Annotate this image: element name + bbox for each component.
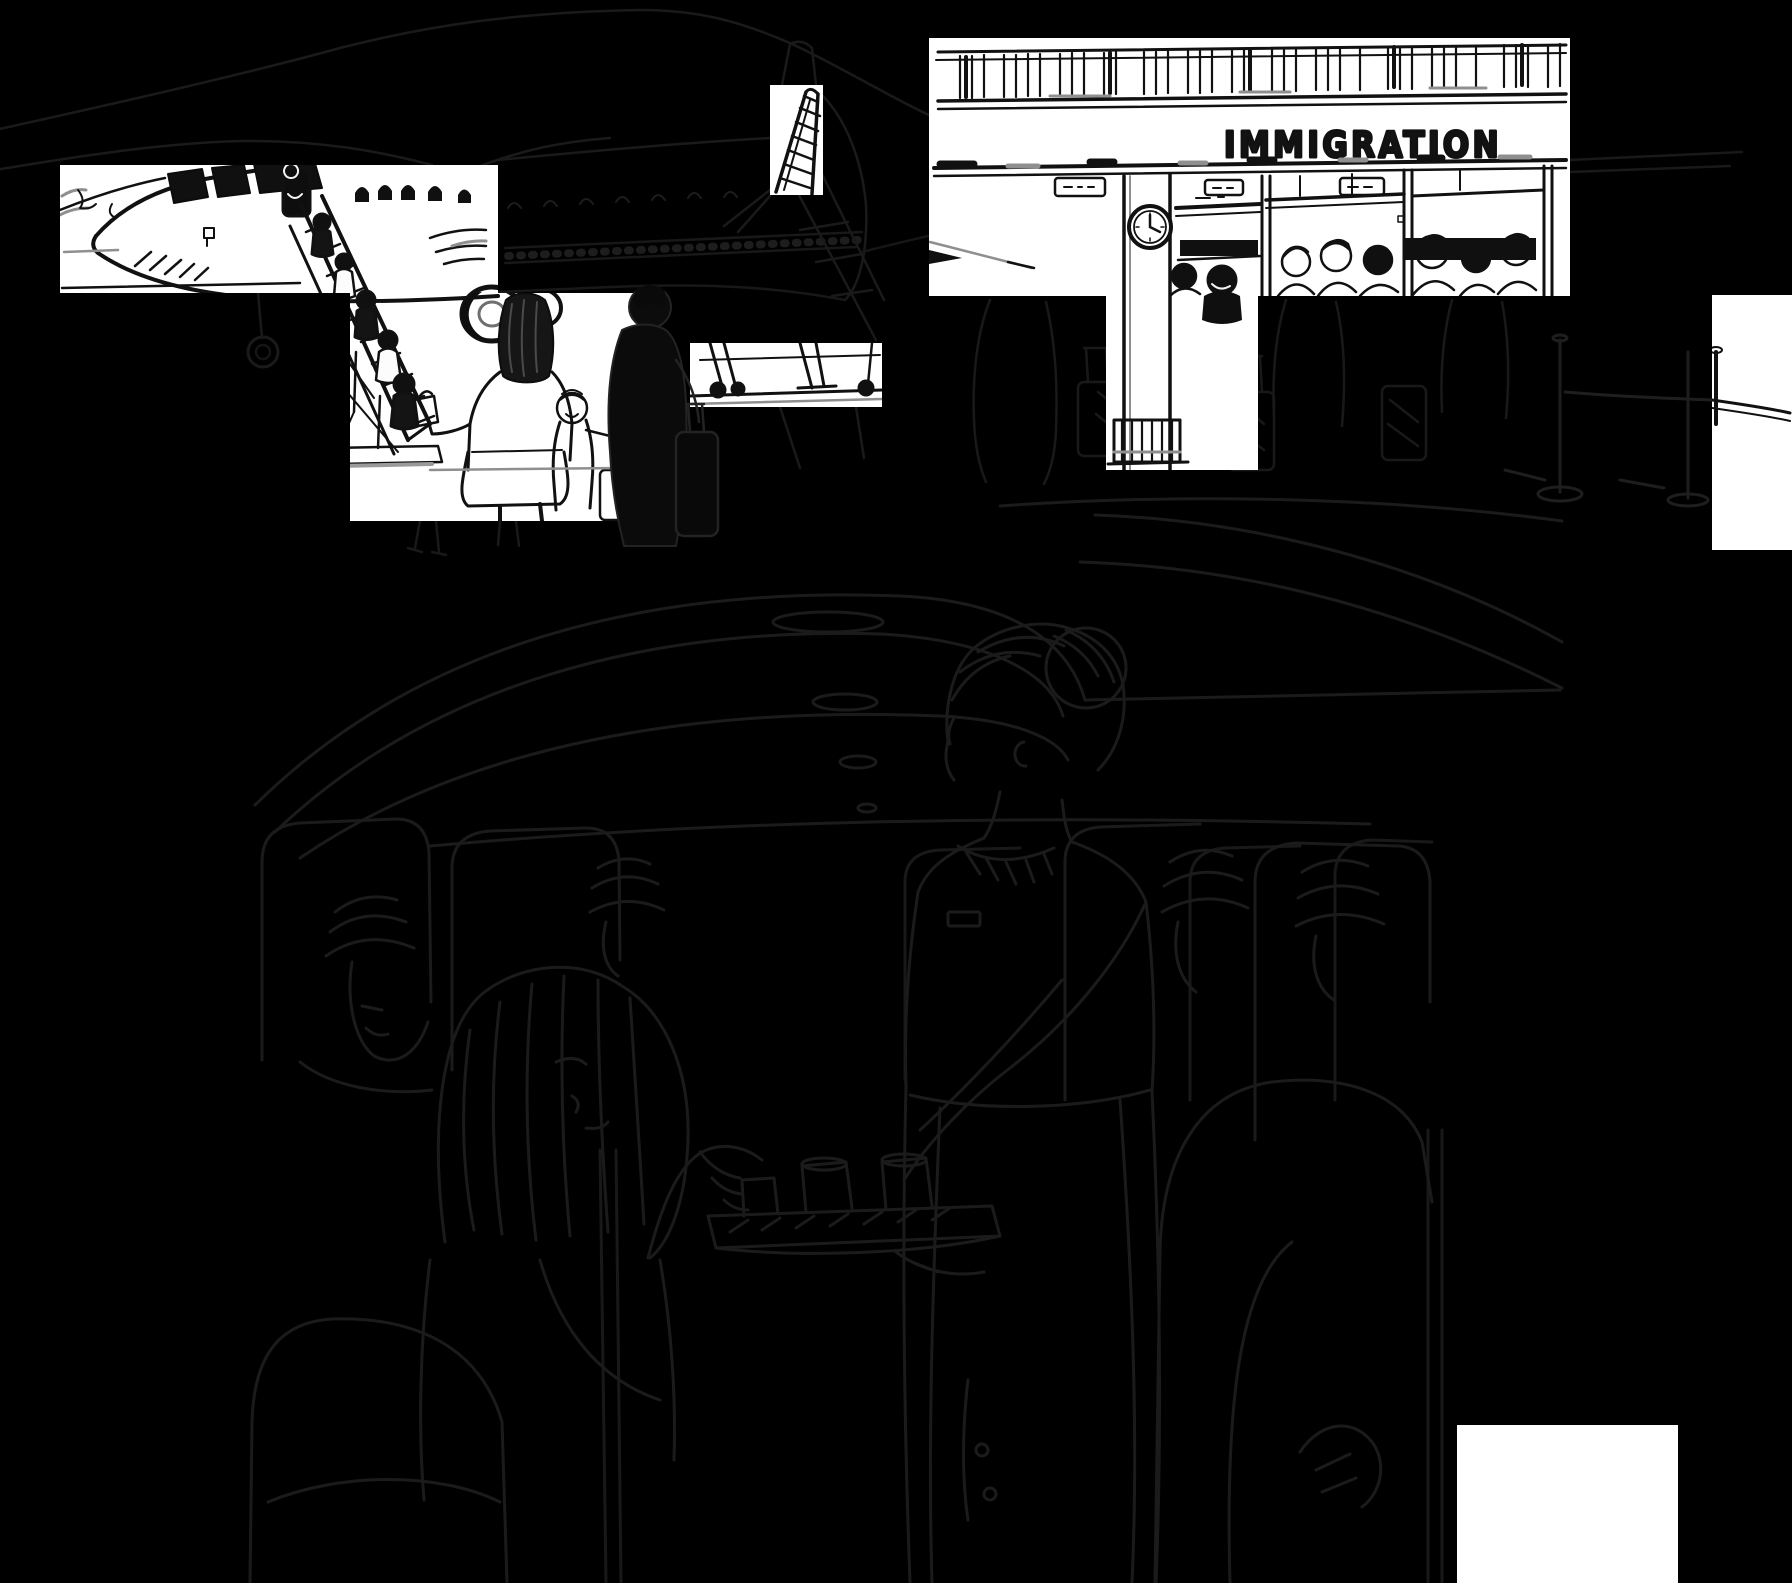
artwork-svg: IMMIGRATION: [0, 0, 1792, 1583]
illustration-canvas: IMMIGRATION: [0, 0, 1792, 1583]
patch-right-edge: [1712, 295, 1792, 550]
patch-blank: [1457, 1425, 1678, 1583]
officer-head-ink: [1208, 266, 1236, 294]
